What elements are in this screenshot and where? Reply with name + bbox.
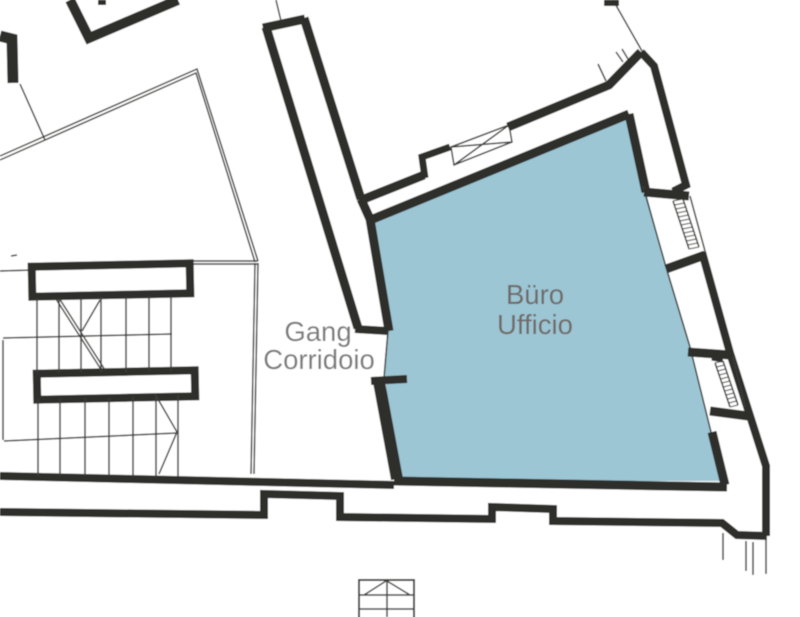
svg-text:Büro: Büro — [506, 279, 564, 310]
svg-text:Gang: Gang — [284, 316, 351, 347]
svg-text:Ufficio: Ufficio — [497, 309, 573, 340]
svg-text:Corridoio: Corridoio — [263, 344, 375, 375]
